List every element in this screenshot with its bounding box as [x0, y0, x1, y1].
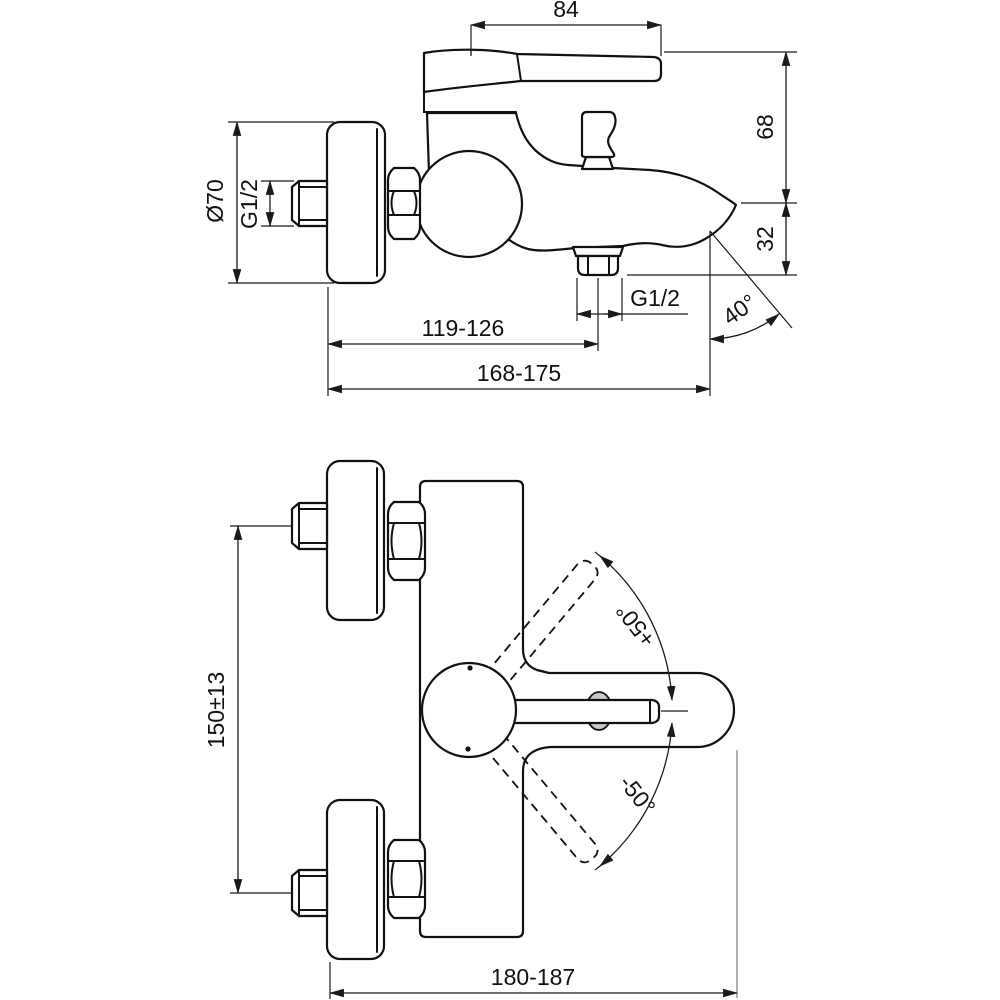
dim-label-40deg: 40°	[718, 289, 761, 330]
mixer-dimension-drawing: 84 68 32 Ø70 G1/2 119-126	[0, 0, 1000, 1000]
dim-label-g12-inlet: G1/2	[236, 179, 262, 229]
dim-inlet-thread: G1/2	[236, 179, 294, 229]
dim-label-32: 32	[752, 226, 778, 252]
dim-label-minus50: -50°	[614, 770, 661, 819]
dim-spout-angle: 40°	[710, 231, 792, 396]
wall-escutcheon-bottom	[327, 800, 384, 959]
lever-handle	[424, 50, 661, 92]
dim-inlet-centres: 150±13	[203, 526, 293, 893]
dim-lever-length: 84	[471, 0, 661, 56]
screw-dot-bottom	[465, 746, 470, 751]
dim-label-d70: Ø70	[202, 179, 228, 222]
dim-label-150: 150±13	[203, 672, 229, 749]
diverter-knob	[582, 112, 616, 157]
handle-neck	[424, 91, 516, 112]
side-view: 84 68 32 Ø70 G1/2 119-126	[202, 0, 797, 396]
dim-label-168-175: 168-175	[477, 360, 561, 386]
dim-label-84: 84	[553, 0, 579, 22]
diverter-base	[582, 157, 613, 169]
cartridge-ball-front	[422, 663, 516, 757]
dim-label-g12-outlet: G1/2	[630, 285, 680, 311]
wall-escutcheon-top	[327, 461, 384, 620]
shower-outlet-nut	[578, 256, 618, 275]
shower-outlet-flange	[573, 247, 623, 256]
dim-wall-to-spout-tip: 168-175	[328, 360, 710, 389]
union-nut-bottom	[388, 840, 425, 918]
technical-drawing-page: 84 68 32 Ø70 G1/2 119-126	[0, 0, 1000, 1000]
screw-dot-top	[467, 665, 472, 670]
dim-label-68: 68	[752, 114, 778, 140]
cartridge-ball	[416, 151, 522, 257]
front-view: 150±13 +50° -50° 180-187	[203, 461, 737, 999]
union-nut-top	[388, 502, 425, 580]
dim-label-180-187: 180-187	[491, 964, 575, 990]
dim-label-119-126: 119-126	[422, 315, 505, 341]
union-nut-side	[388, 168, 420, 239]
dim-shower-outlet-thread: G1/2	[577, 278, 688, 321]
